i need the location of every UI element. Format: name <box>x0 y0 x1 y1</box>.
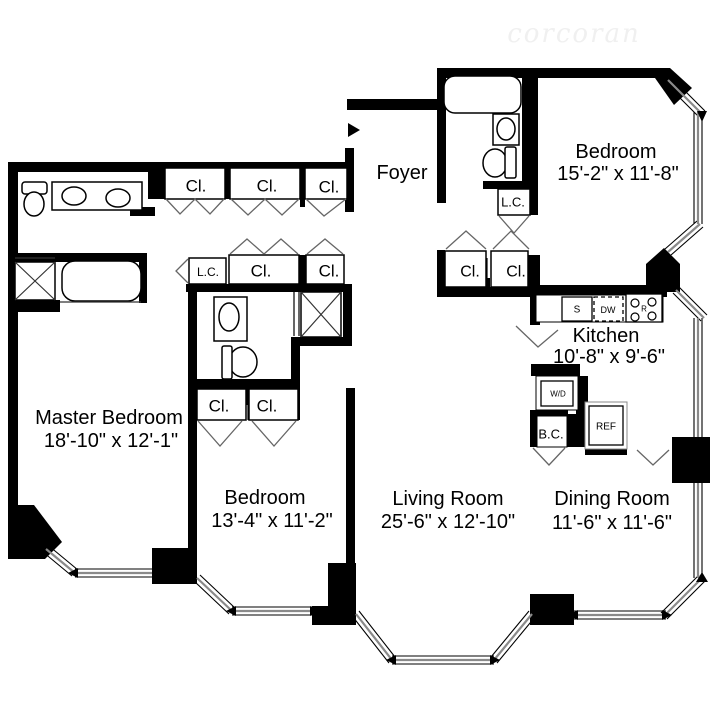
toilet-icon <box>483 147 516 178</box>
dishwasher-label: DW <box>601 305 616 315</box>
closet-label: Cl. <box>257 397 278 416</box>
room-label-dining-room: Dining Room <box>554 488 670 510</box>
room-dims-dining-room: 11'-6" x 11'-6" <box>552 512 672 534</box>
room-label-bedroom-bottom: Bedroom <box>224 487 305 509</box>
refrigerator-label: REF <box>596 422 616 433</box>
sink-icon <box>493 114 519 145</box>
sink-icon <box>214 297 247 341</box>
room-label-kitchen: Kitchen <box>573 325 640 347</box>
closet-label: Cl. <box>251 262 272 281</box>
floor-plan: corcoran <box>0 0 720 720</box>
room-label-living-room: Living Room <box>392 488 503 510</box>
room-dims-living-room: 25'-6" x 12'-10" <box>381 511 515 533</box>
bathtub-icon <box>62 261 141 301</box>
room-label-foyer: Foyer <box>376 162 427 184</box>
closet-label: Cl. <box>506 264 526 281</box>
linen-closet-label: L.C. <box>197 265 219 279</box>
room-dims-bedroom-top: 15'-2" x 11'-8" <box>557 163 679 185</box>
watermark: corcoran <box>507 19 641 49</box>
closet-label: Cl. <box>319 262 340 281</box>
closet-label: Cl. <box>257 177 278 196</box>
broom-closet-label: B.C. <box>538 427 563 442</box>
toilet-icon <box>222 346 257 379</box>
room-label-master-bedroom: Master Bedroom <box>35 407 183 429</box>
room-dims-kitchen: 10'-8" x 9'-6" <box>553 346 665 368</box>
closet-label: Cl. <box>460 264 480 281</box>
closet-label: Cl. <box>186 177 207 196</box>
linen-closet-label: L.C. <box>501 195 525 210</box>
closet-label: Cl. <box>319 178 340 197</box>
room-dims-master-bedroom: 18'-10" x 12'-1" <box>44 430 178 452</box>
bathtub-icon <box>444 76 521 113</box>
room-label-bedroom-top: Bedroom <box>575 141 656 163</box>
sink-label: S <box>574 305 581 316</box>
range-label: R <box>641 305 647 314</box>
double-vanity-icon <box>52 182 142 210</box>
washer-dryer-label: W/D <box>550 390 566 399</box>
room-dims-bedroom-bottom: 13'-4" x 11'-2" <box>211 510 333 532</box>
closet-label: Cl. <box>209 397 230 416</box>
